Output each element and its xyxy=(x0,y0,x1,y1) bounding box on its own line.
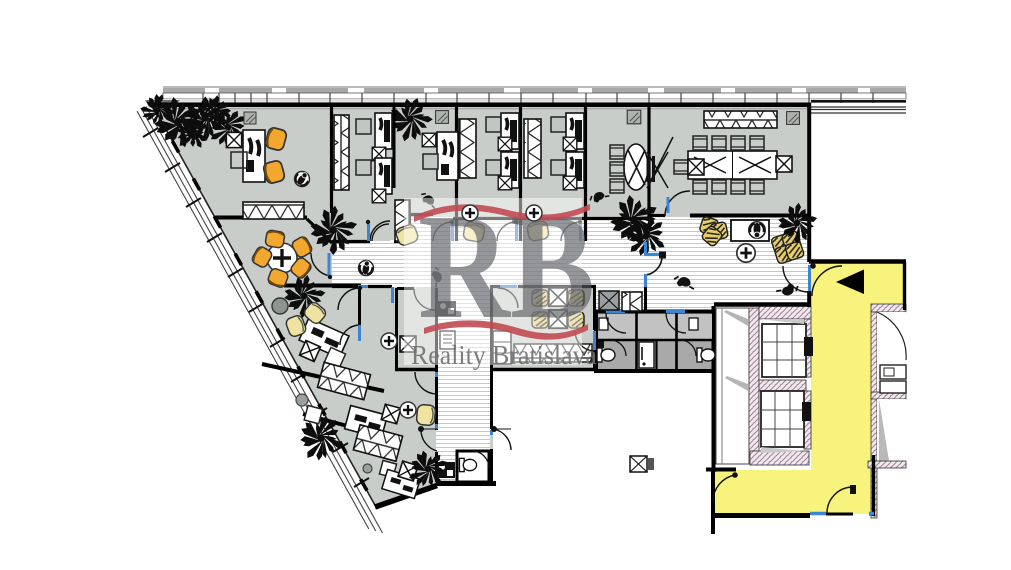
svg-text:Reality Bratislava: Reality Bratislava xyxy=(411,340,597,370)
